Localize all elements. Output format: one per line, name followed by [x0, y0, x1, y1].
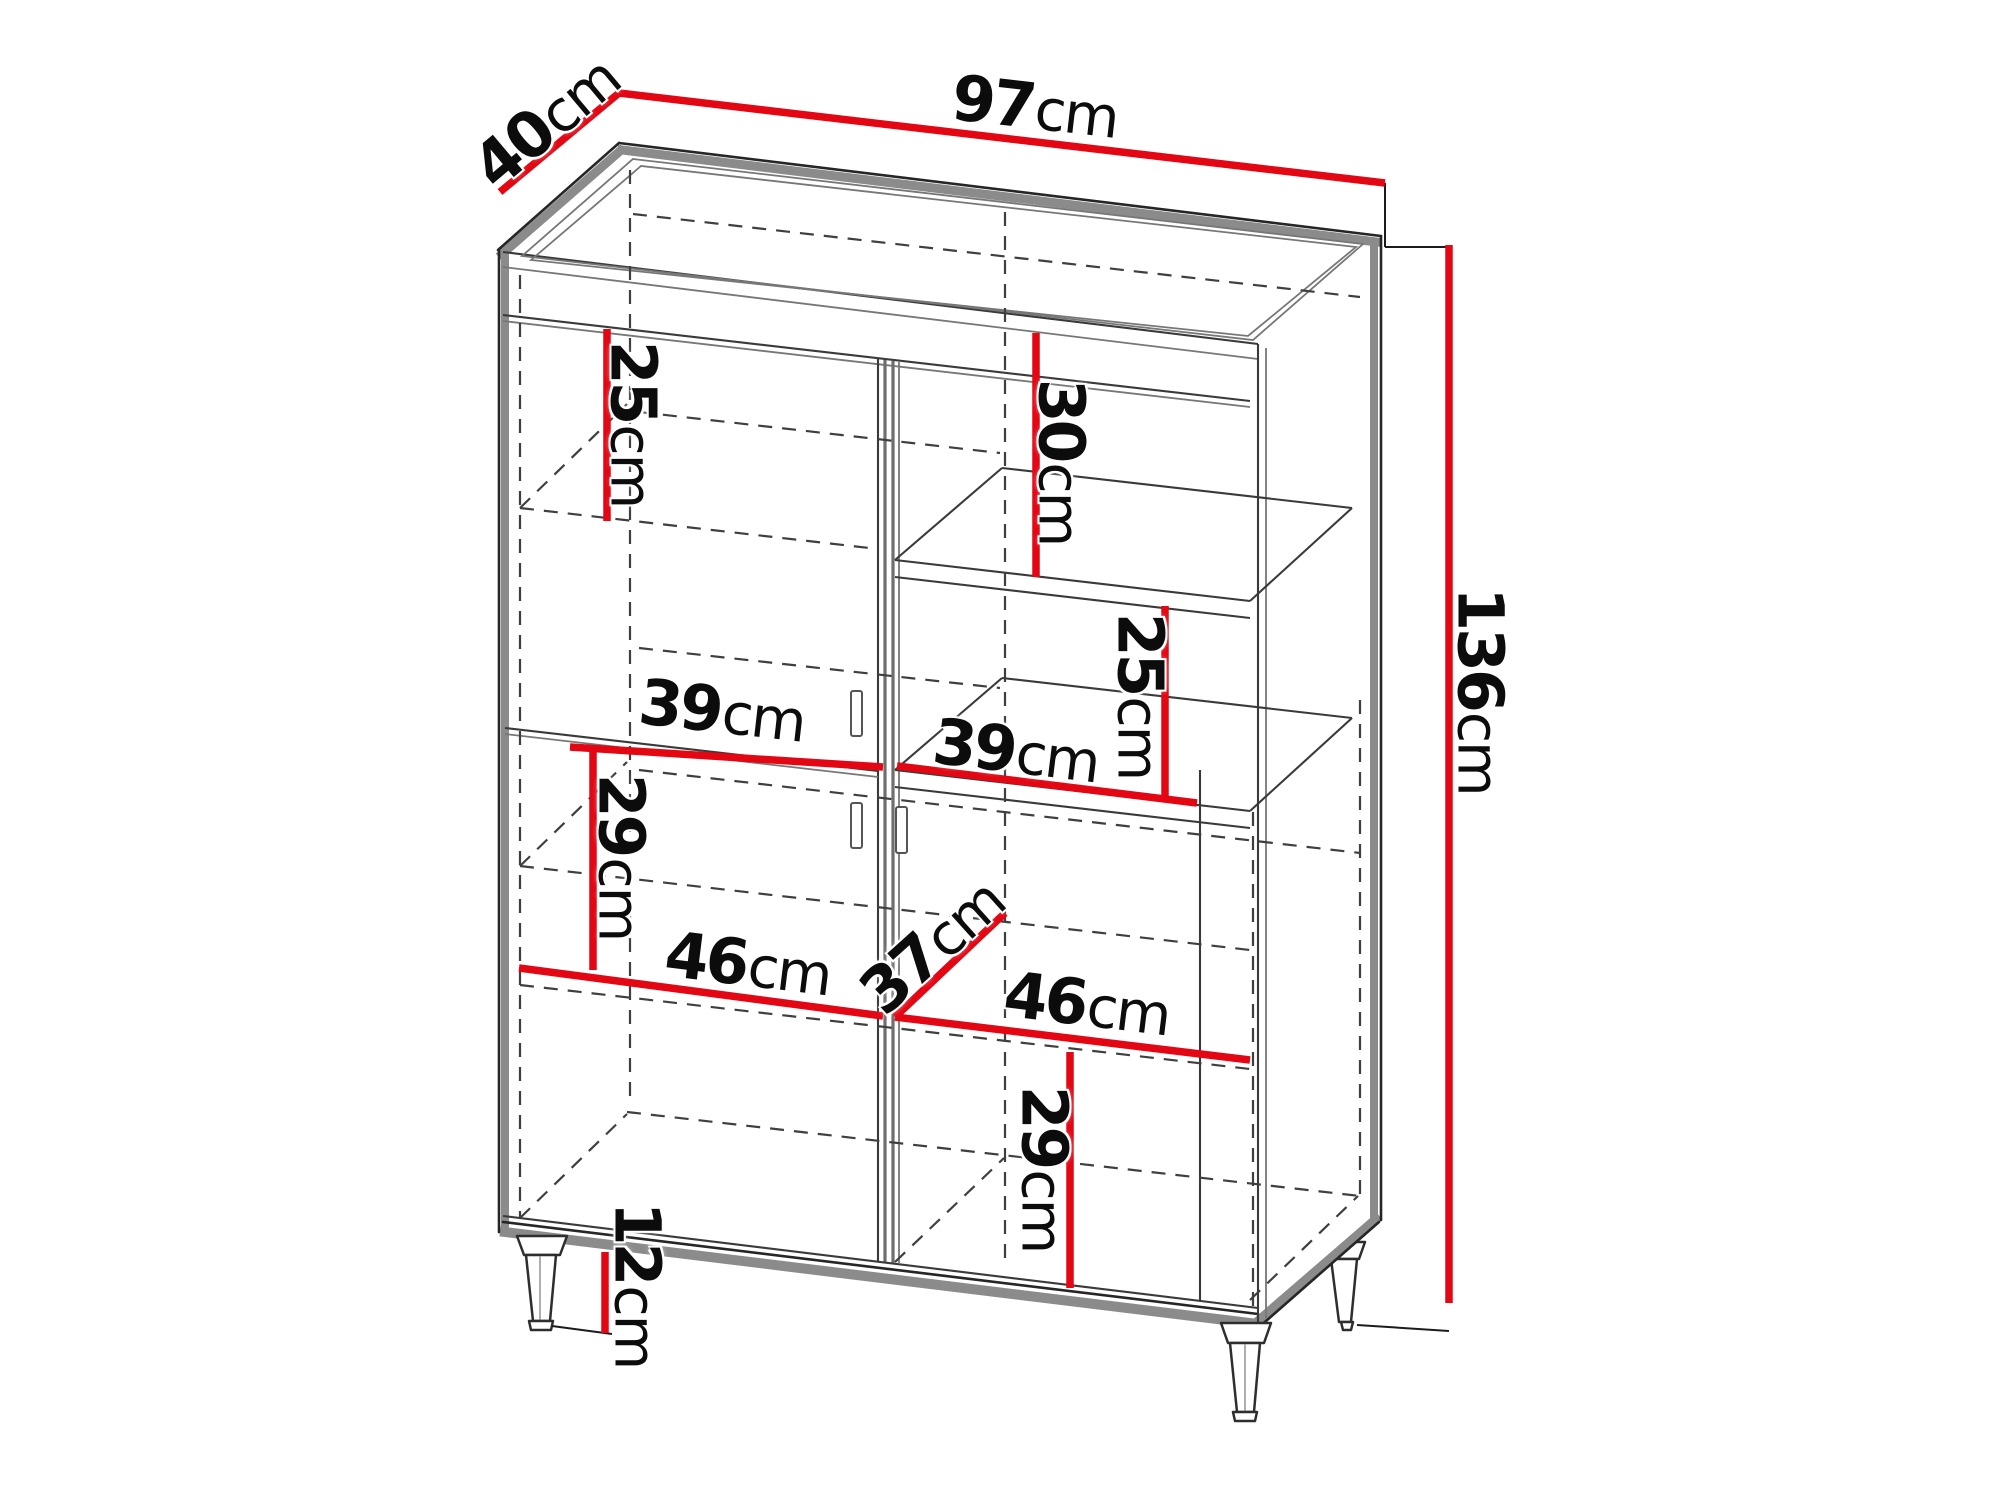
label-top-right-30: 30cm	[1030, 379, 1093, 546]
label-top-left-25: 25cm	[602, 341, 665, 508]
label-right-shelf-25: 25cm	[1109, 613, 1172, 780]
handle-lower-left-door	[851, 803, 862, 848]
handle-upper-left-door	[851, 691, 862, 736]
front-right-leg	[1221, 1323, 1271, 1421]
label-left-mid-29: 29cm	[590, 774, 653, 941]
front-left-leg	[517, 1236, 567, 1330]
label-right-lower-29: 29cm	[1013, 1086, 1076, 1253]
label-overall-height: 136cm	[1449, 587, 1512, 794]
dimension-diagram: 97cm 40cm 136cm 25cm 30cm 25cm 39cm 39cm…	[0, 0, 2000, 1499]
label-legs-12: 12cm	[606, 1202, 669, 1369]
handle-lower-right-door	[896, 807, 907, 853]
